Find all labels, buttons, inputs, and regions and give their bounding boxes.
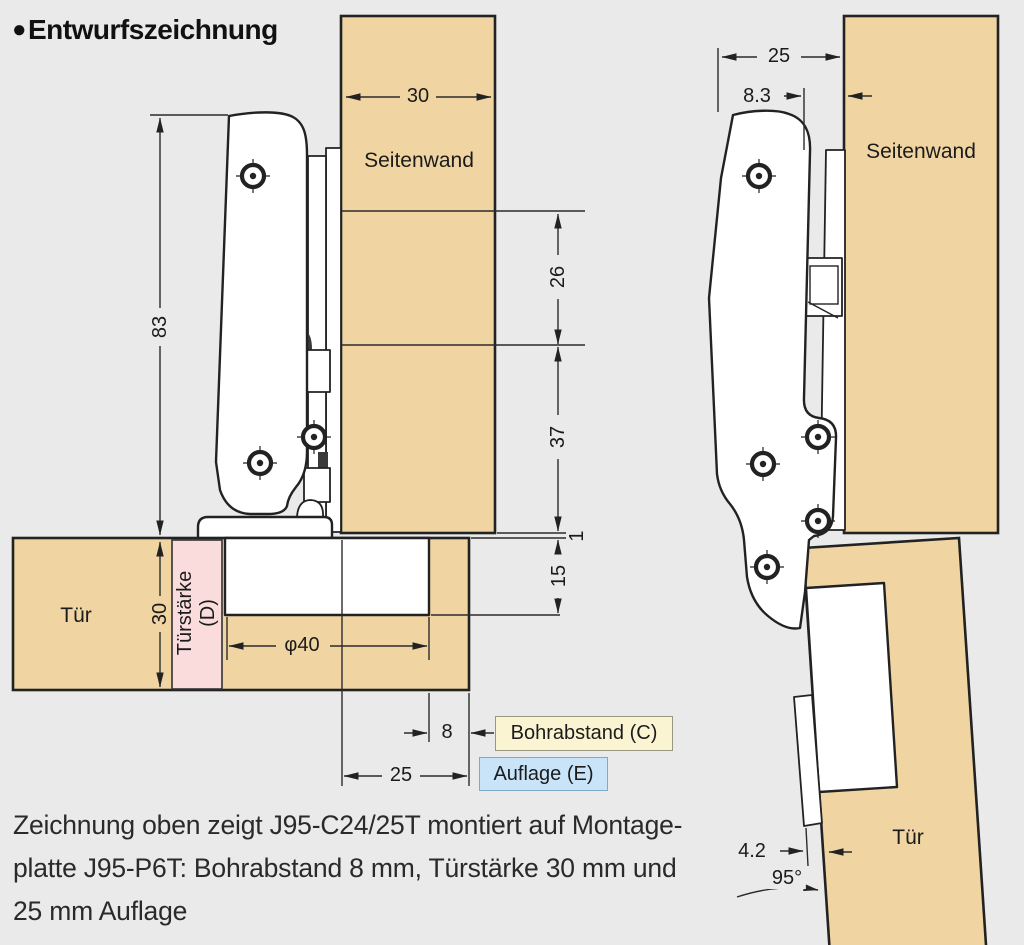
dim-overlay: 25 bbox=[386, 764, 416, 786]
right-side-panel bbox=[844, 16, 998, 533]
dim-cup-depth: 15 bbox=[548, 561, 570, 591]
door-thickness-label: Türstärke(D) bbox=[174, 571, 220, 655]
dim-plate-offset: 8.3 bbox=[739, 85, 775, 107]
drill-distance-callout: Bohrabstand (C) bbox=[495, 716, 673, 751]
drawing-page: ● Entwurfszeichnung Seitenwand Seitenwan… bbox=[0, 0, 1024, 945]
left-side-panel-label: Seitenwand bbox=[364, 149, 474, 173]
dim-drill-distance: 8 bbox=[437, 721, 456, 743]
dim-door-thickness: 30 bbox=[149, 599, 171, 629]
dim-panel-width: 30 bbox=[403, 85, 433, 107]
right-hinge-cup bbox=[806, 583, 897, 792]
dim-hole-span: 37 bbox=[547, 422, 569, 452]
dim-opening-angle: 95° bbox=[768, 867, 806, 889]
left-hinge-boss bbox=[198, 517, 332, 539]
right-door-label: Tür bbox=[892, 826, 924, 850]
overlay-callout: Auflage (E) bbox=[479, 757, 608, 791]
left-door-label: Tür bbox=[60, 604, 92, 628]
page-title: ● Entwurfszeichnung bbox=[12, 14, 278, 46]
dim-gap: 1 bbox=[566, 526, 588, 545]
bullet-icon: ● bbox=[12, 18, 26, 42]
dim-protrusion: 4.2 bbox=[734, 840, 770, 862]
right-side-panel-label: Seitenwand bbox=[866, 140, 976, 164]
left-hinge-cup bbox=[225, 538, 429, 615]
page-title-text: Entwurfszeichnung bbox=[28, 14, 278, 46]
caption-text: Zeichnung oben zeigt J95-C24/25T montier… bbox=[13, 804, 713, 933]
dim-hinge-height: 83 bbox=[149, 312, 171, 342]
dim-cup-diameter: φ40 bbox=[280, 634, 323, 656]
dim-hole-offset-top: 26 bbox=[547, 262, 569, 292]
dim-overlay-right: 25 bbox=[764, 45, 794, 67]
